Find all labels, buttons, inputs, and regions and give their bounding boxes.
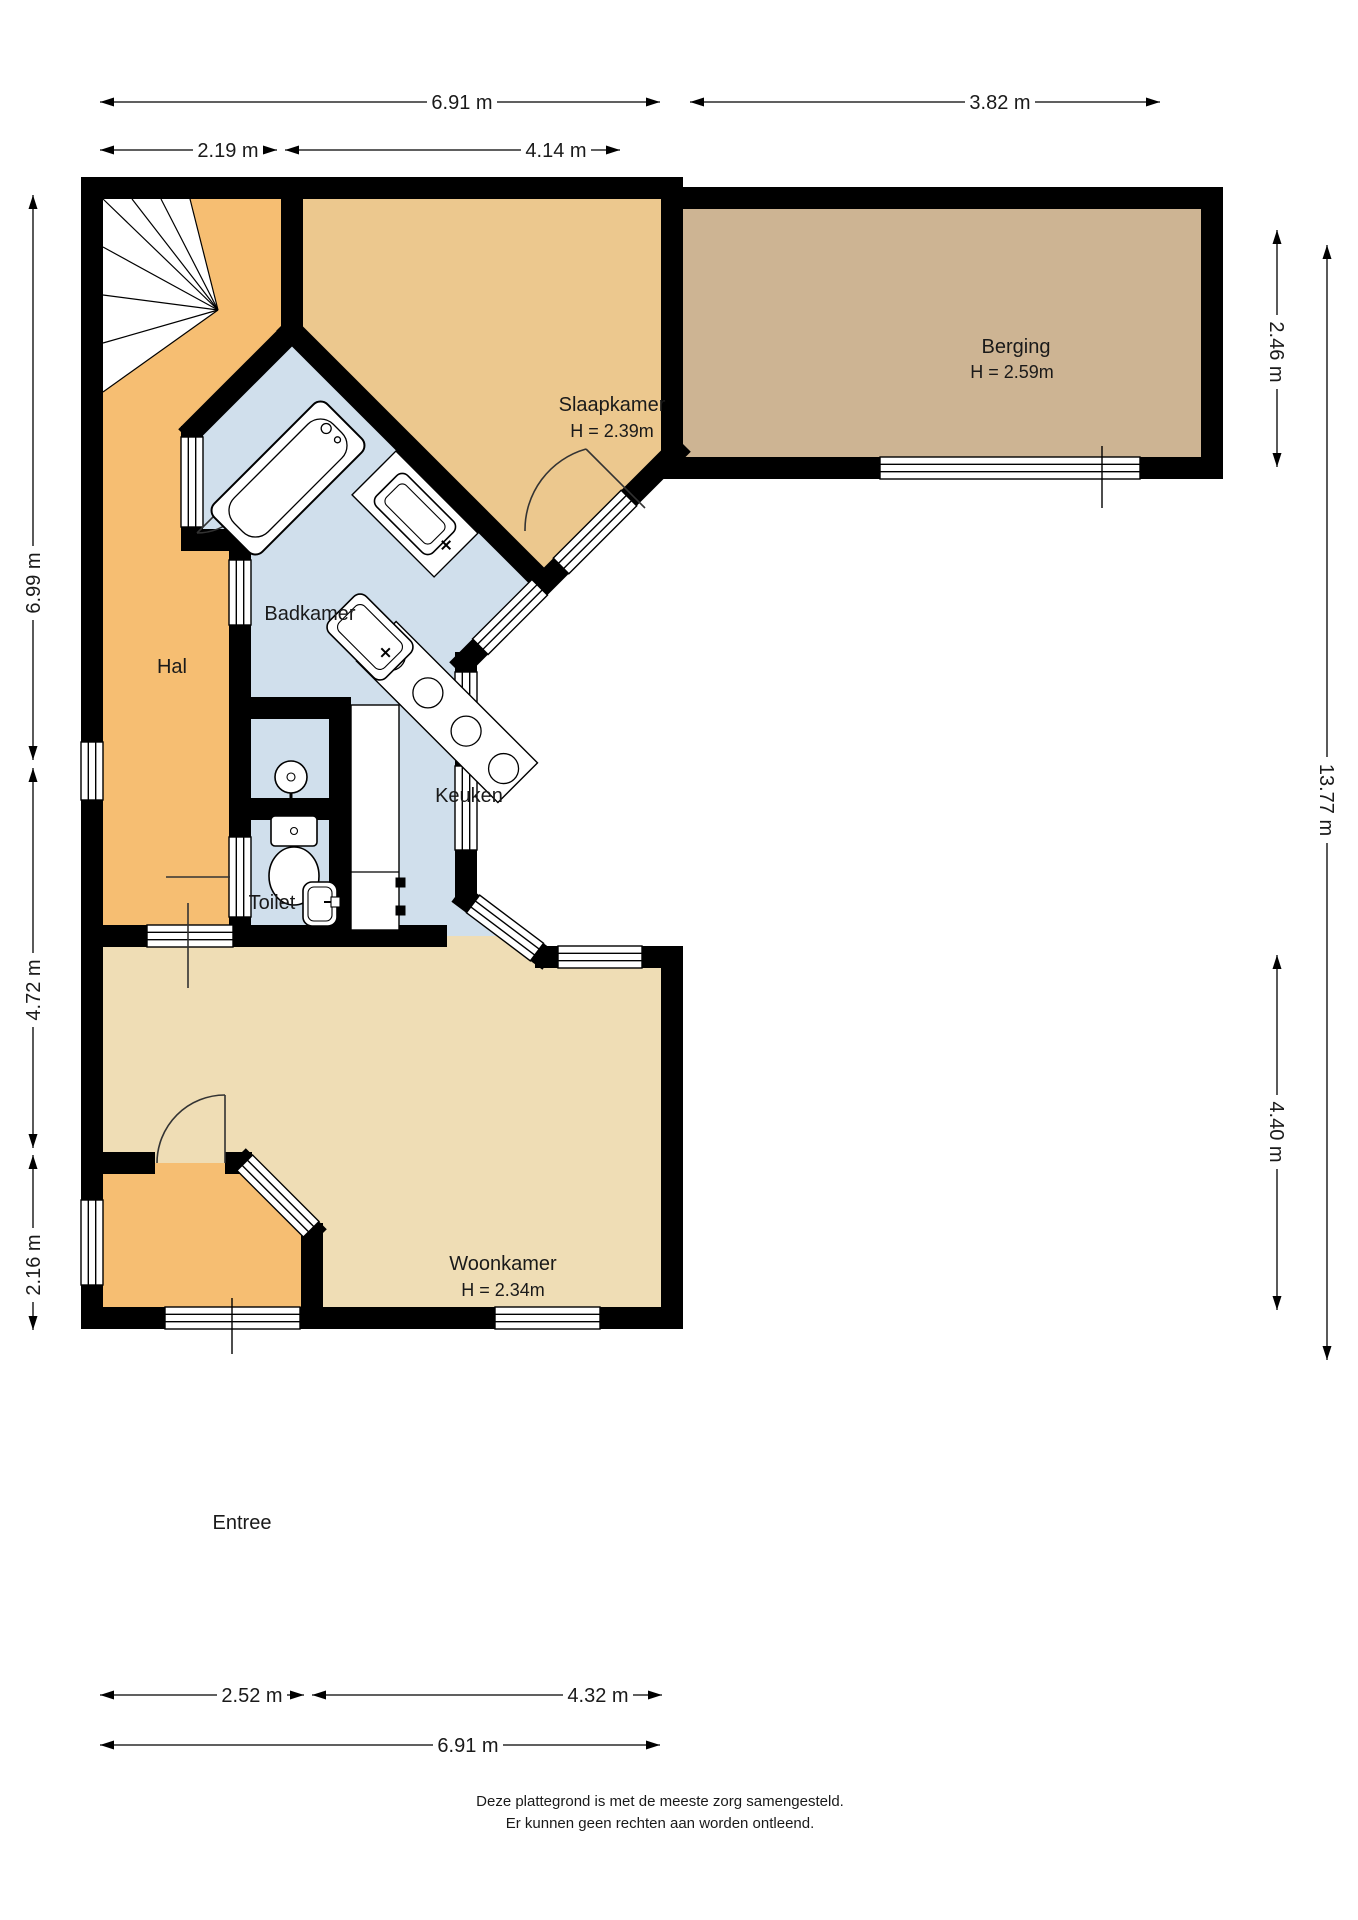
dim-top-berging: 3.82 m [969, 92, 1030, 114]
dim-right-woonkamer: 4.40 m [1265, 1101, 1287, 1162]
dim-bottom-woonkamer: 4.32 m [567, 1685, 628, 1707]
room-label-woonkamer: Woonkamer [449, 1253, 557, 1275]
footer-disclaimer-line1: Deze plattegrond is met de meeste zorg s… [476, 1793, 844, 1810]
room-label-hal: Hal [157, 656, 187, 678]
dim-left-middle: 4.72 m [23, 959, 45, 1020]
dim-left-lower: 2.16 m [23, 1234, 45, 1295]
room-height-woonkamer: H = 2.34m [461, 1280, 545, 1300]
kitchen-counter-icon [351, 705, 405, 930]
dim-bottom-entree: 2.52 m [221, 1685, 282, 1707]
window [495, 1307, 600, 1329]
window [165, 1298, 300, 1354]
dim-left-upper: 6.99 m [23, 552, 45, 613]
room-height-berging: H = 2.59m [970, 362, 1054, 382]
window [229, 560, 251, 625]
window [81, 1200, 103, 1285]
room-height-slaapkamer: H = 2.39m [570, 421, 654, 441]
room-label-slaapkamer: Slaapkamer [559, 394, 666, 416]
footer-disclaimer-line2: Er kunnen geen rechten aan worden ontlee… [506, 1815, 815, 1832]
window [81, 742, 103, 800]
window [181, 437, 203, 527]
dim-right-total: 13.77 m [1315, 764, 1337, 836]
room-label-keuken: Keuken [435, 785, 503, 807]
dim-top-slaapkamer: 4.14 m [525, 140, 586, 162]
dim-top-hal: 2.19 m [197, 140, 258, 162]
window [147, 925, 233, 947]
floor-plan-page: Slaapkamer H = 2.39m Berging H = 2.59m B… [0, 0, 1358, 1920]
room-label-badkamer: Badkamer [264, 603, 355, 625]
floor-plan-svg: Slaapkamer H = 2.39m Berging H = 2.59m B… [0, 0, 1358, 1920]
dim-right-berging: 2.46 m [1265, 321, 1287, 382]
room-label-berging: Berging [982, 336, 1051, 358]
hand-basin-icon [303, 882, 340, 926]
window [558, 946, 642, 968]
dim-top-total: 6.91 m [431, 92, 492, 114]
dim-bottom-total: 6.91 m [437, 1735, 498, 1757]
berging-floor [672, 198, 1212, 468]
room-label-entree: Entree [213, 1512, 272, 1534]
room-label-toilet: Toilet [249, 892, 296, 914]
